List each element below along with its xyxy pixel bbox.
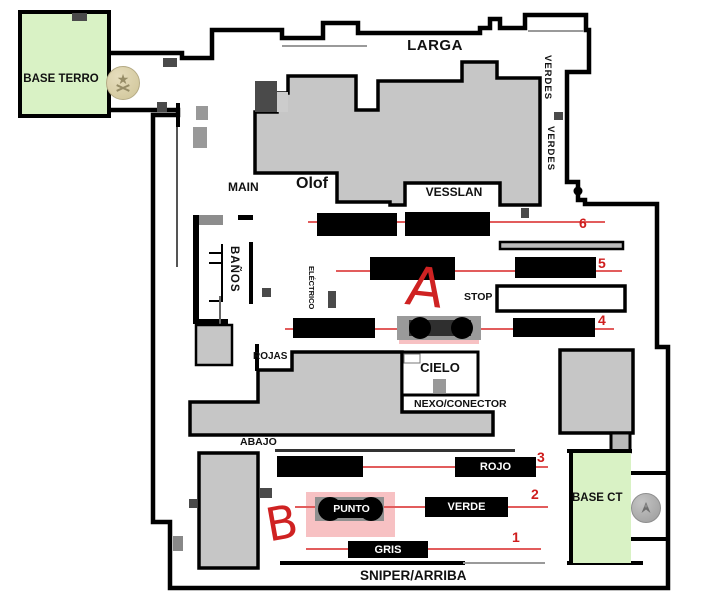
label-vesslan: VESSLAN — [408, 185, 500, 199]
banos-door-bar — [249, 242, 253, 304]
label-stop: STOP — [464, 291, 492, 303]
banos-bench-t2 — [209, 262, 222, 264]
prop-box — [521, 208, 529, 218]
crate — [405, 212, 490, 236]
crate-verde: VERDE — [425, 497, 508, 517]
ct-wall-1 — [627, 471, 668, 475]
label-abajo: ABAJO — [240, 436, 277, 448]
sniper-wall — [280, 561, 465, 565]
ct-badge-emblem-icon — [638, 500, 654, 516]
label-electrico: ELÉCTRICO — [307, 266, 316, 309]
prop-cielo — [433, 379, 446, 393]
lane-number-4: 4 — [598, 312, 606, 328]
map-canvas: ROJO VERDE GRIS PUNTO 6 5 4 3 2 1 LARGA … — [0, 0, 716, 602]
rojas-block — [196, 325, 232, 365]
banos-wall-top2 — [238, 215, 253, 220]
lane-number-2: 2 — [531, 486, 539, 502]
building-a-right — [560, 350, 633, 433]
main-thin-wall — [176, 127, 178, 267]
label-main: MAIN — [228, 180, 259, 194]
crate — [293, 318, 375, 338]
crate — [515, 257, 596, 278]
crate-verde-label: VERDE — [448, 501, 486, 513]
t-spawn-zone — [18, 10, 111, 118]
crate-punto: PUNTO — [325, 500, 378, 518]
label-larga: LARGA — [400, 37, 470, 54]
topright-thin-wall — [528, 30, 584, 32]
prop-box — [262, 288, 271, 297]
prop-box — [163, 58, 177, 67]
banos-wall-left — [193, 215, 199, 323]
crate — [317, 213, 397, 236]
prop-box — [193, 127, 207, 148]
label-base-ct: BASE CT — [572, 492, 622, 504]
lane-number-5: 5 — [598, 255, 606, 271]
prop-box — [277, 92, 288, 112]
crate — [277, 456, 363, 477]
prop-box — [196, 106, 208, 120]
label-rojas: ROJAS — [253, 351, 287, 362]
prop-box — [173, 536, 183, 551]
ct-spawn-zone — [569, 453, 631, 563]
label-sniper: SNIPER/ARRIBA — [360, 568, 467, 583]
crate-gris-label: GRIS — [375, 544, 402, 556]
lane-number-3: 3 — [537, 449, 545, 465]
t-badge-swords-icon — [115, 84, 131, 92]
terrorist-spawn-badge-icon: ★ — [106, 66, 140, 100]
label-olof: Olof — [296, 175, 328, 193]
prop-box — [157, 102, 167, 112]
crate-rojo: ROJO — [455, 457, 536, 477]
prop-electrico — [328, 291, 336, 308]
prop-box — [189, 499, 197, 508]
larga-thin-wall — [282, 45, 367, 47]
prop-box — [72, 13, 87, 21]
sniper-thin-wall — [463, 562, 545, 564]
ct-spawn-badge-icon — [631, 493, 661, 523]
lane-number-1: 1 — [512, 529, 520, 545]
abajo-wall — [275, 449, 515, 452]
prop-box — [255, 81, 277, 112]
banos-wall-top — [199, 215, 223, 225]
thin-crate — [500, 242, 623, 249]
banos-wall-bottom — [193, 319, 228, 324]
building-b-left — [199, 453, 258, 568]
crate-rojo-label: ROJO — [480, 461, 511, 473]
door-dot — [574, 187, 583, 196]
crate-gris: GRIS — [348, 541, 428, 558]
label-base-terro: BASE TERRO — [20, 73, 102, 85]
prop-box-verdes — [554, 112, 563, 120]
roller-wheel — [451, 317, 473, 339]
label-verdes-upper: VERDES — [542, 55, 553, 100]
label-nexo: NEXO/CONECTOR — [414, 398, 507, 410]
roller-wheel — [409, 317, 431, 339]
label-verdes-lower: VERDES — [545, 126, 556, 171]
corridor-wall — [176, 103, 180, 127]
label-cielo: CIELO — [402, 360, 478, 375]
crate — [513, 318, 595, 337]
crate-punto-label: PUNTO — [333, 503, 370, 515]
label-banos: BAÑOS — [228, 246, 240, 293]
ct-wall-2 — [627, 537, 668, 541]
t-badge-star-icon: ★ — [117, 74, 130, 84]
banos-bench-t1 — [209, 252, 222, 254]
stop-crate — [497, 286, 625, 311]
lane-number-6: 6 — [579, 215, 587, 231]
